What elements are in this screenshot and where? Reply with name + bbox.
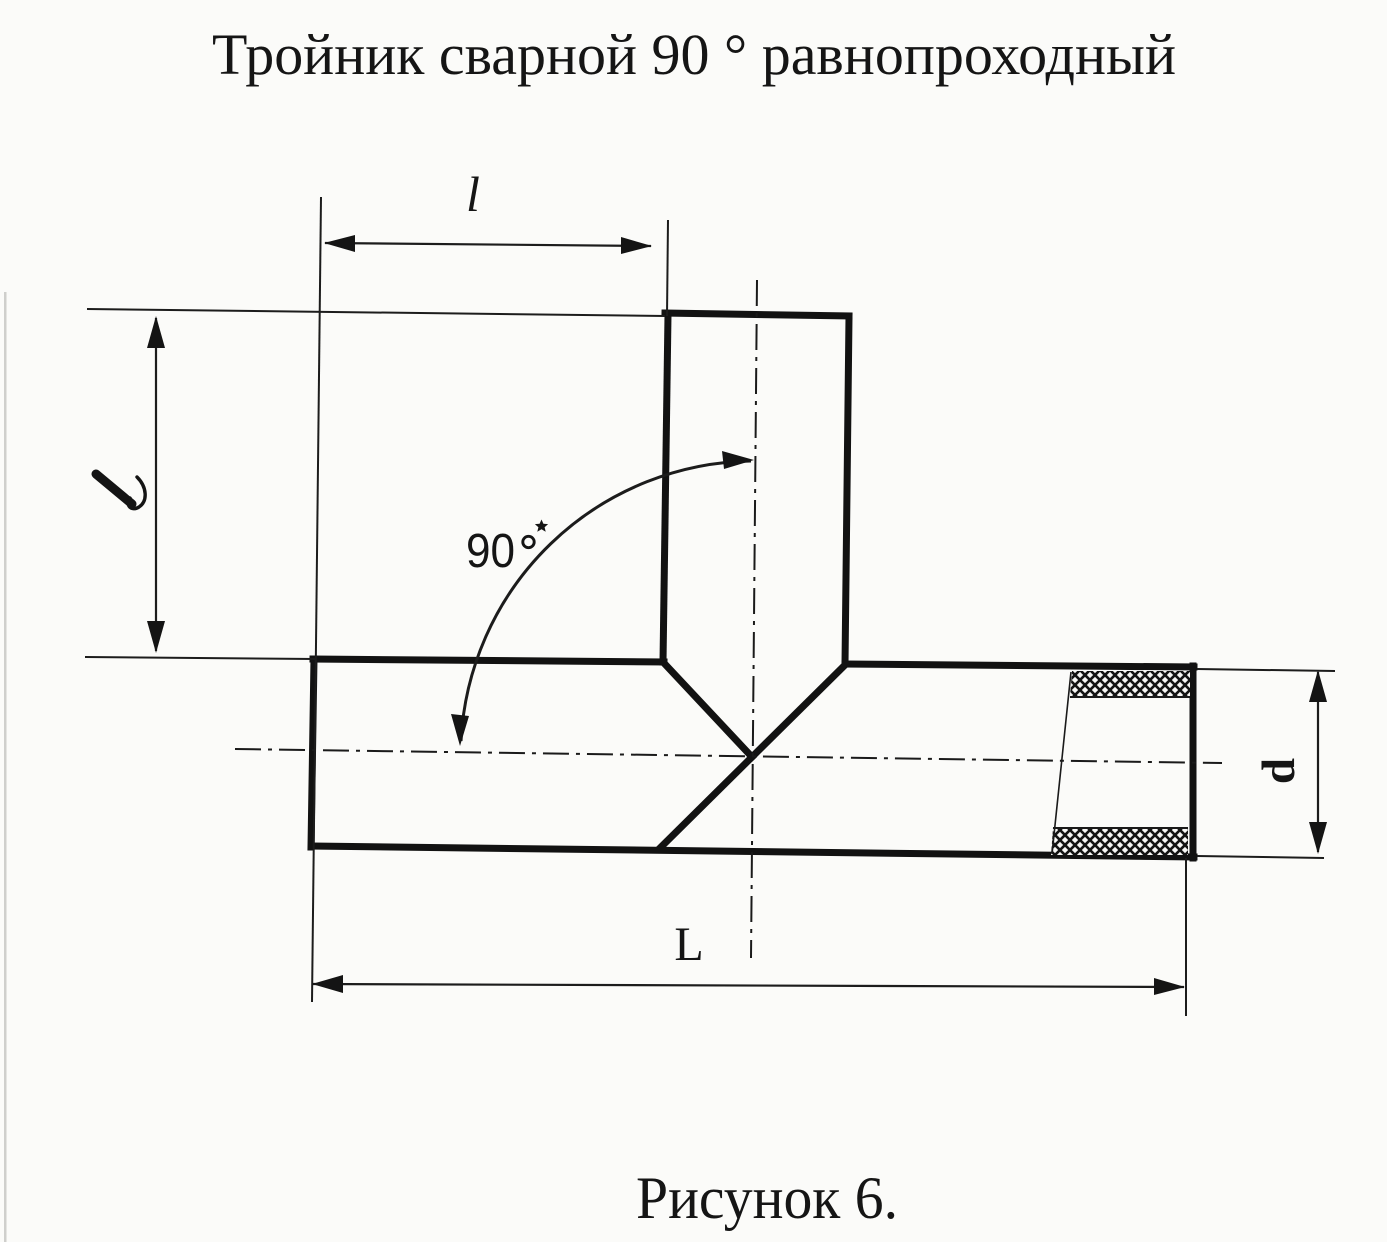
svg-text:Рисунок 6.: Рисунок 6. xyxy=(636,1165,898,1231)
svg-text:Тройник сварной 90 ° равнопрох: Тройник сварной 90 ° равнопроходный xyxy=(212,22,1176,87)
svg-text:L: L xyxy=(674,918,703,971)
svg-text:90: 90 xyxy=(466,525,515,578)
svg-text:l: l xyxy=(466,166,480,222)
svg-text:d: d xyxy=(1253,758,1305,784)
